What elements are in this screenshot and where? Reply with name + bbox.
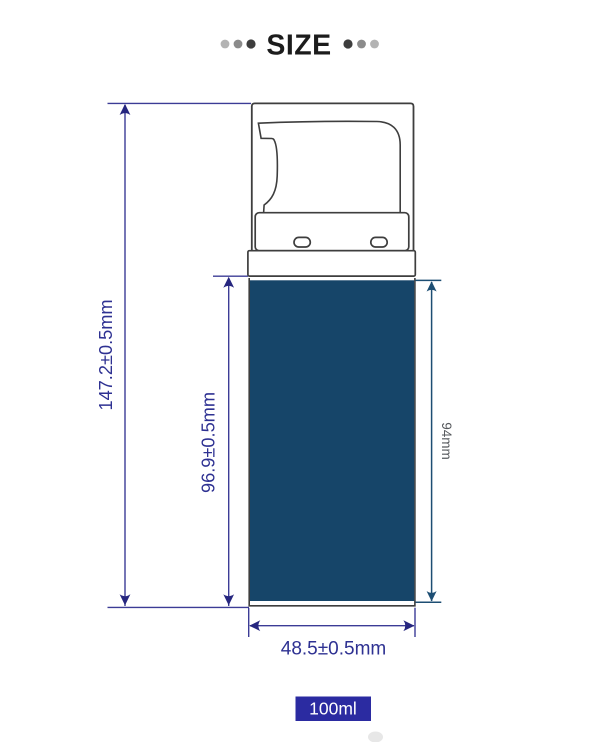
svg-text:SIZE: SIZE xyxy=(266,30,331,62)
svg-text:100ml: 100ml xyxy=(309,699,357,719)
svg-text:147.2±0.5mm: 147.2±0.5mm xyxy=(96,299,116,410)
svg-text:48.5±0.5mm: 48.5±0.5mm xyxy=(281,639,386,660)
svg-text:96.9±0.5mm: 96.9±0.5mm xyxy=(199,392,219,493)
svg-text:94mm: 94mm xyxy=(439,422,454,460)
